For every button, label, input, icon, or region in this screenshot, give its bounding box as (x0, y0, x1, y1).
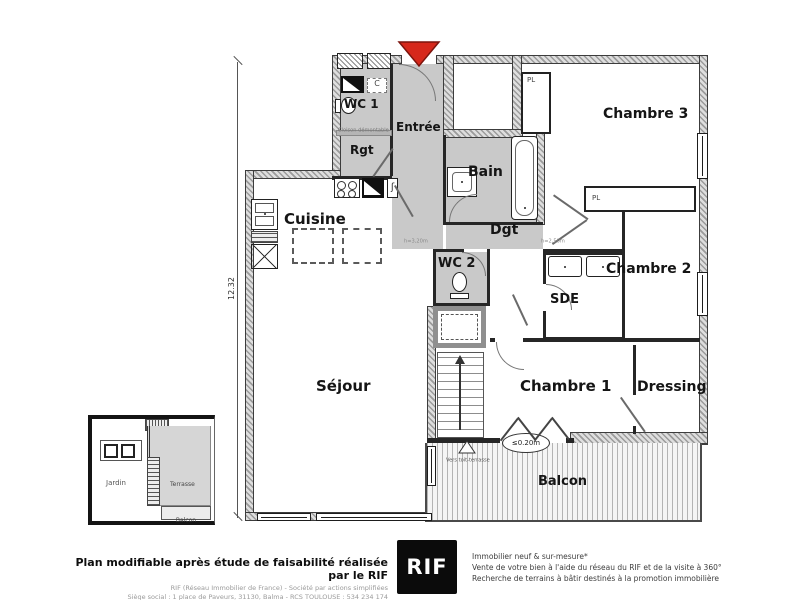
footer-company-line: RIF (Réseau Immobilier de France) - Soci… (62, 584, 388, 592)
partition (487, 249, 490, 306)
footer-address-line: Siège social : 1 place de Paveurs, 31130… (62, 593, 388, 600)
door-arc (496, 342, 524, 370)
room-label-chambre1: Chambre 1 (520, 377, 611, 395)
roof-vent (367, 53, 391, 69)
partition (433, 249, 436, 306)
inset-stairs (147, 457, 160, 506)
kitchen-island (292, 228, 334, 264)
dimension-value: 12.32 (227, 277, 236, 300)
footer-service-line: Vente de votre bien à l'aide du réseau d… (472, 562, 722, 573)
partition (436, 249, 464, 252)
kitchen-sink (251, 199, 278, 230)
window (697, 133, 708, 179)
footer-disclaimer-block: Plan modifiable après étude de faisabili… (62, 556, 388, 600)
roof-vent (337, 53, 363, 69)
key-plan-inset: Balcon Jardin Terrasse (88, 415, 215, 525)
rif-logo-text: RIF (406, 555, 447, 579)
step-level-badge: ≤0.20m (502, 433, 550, 453)
room-label-chambre3: Chambre 3 (603, 106, 688, 122)
stair-direction-line (459, 362, 461, 430)
footer-disclaimer-title: Plan modifiable après étude de faisabili… (62, 556, 388, 582)
cooktop (334, 178, 360, 198)
room-label-wc1: WC 1 (344, 97, 379, 111)
roof-terrace-triangle-icon (458, 440, 476, 455)
appliance-unit (341, 76, 364, 93)
toilet (450, 293, 469, 299)
shower-void (433, 306, 486, 348)
room-label-bain: Bain (468, 164, 503, 180)
window (427, 446, 436, 486)
vers-toit-label: Vers toit-terrasse (446, 457, 490, 463)
partition (633, 345, 636, 395)
partition (633, 426, 636, 434)
room-label-dressing: Dressing (637, 379, 706, 395)
cloison-note: Cloison démontable (338, 127, 389, 133)
room-label-entree: Entrée (396, 120, 441, 134)
partition (543, 311, 546, 340)
room-label-wc2: WC 2 (438, 256, 475, 271)
closet-pl-label: PL (527, 76, 535, 84)
room-label-cuisine: Cuisine (284, 210, 346, 228)
footer-service-line: Immobilier neuf & sur-mesure* (472, 551, 722, 562)
rif-logo: RIF (397, 540, 457, 594)
partition (490, 338, 495, 342)
sliding-bay-window (316, 513, 432, 521)
counter-edge (546, 251, 622, 255)
room-label-sde: SDE (550, 292, 579, 307)
inset-balcon-strip: Balcon (161, 506, 211, 520)
footer: Plan modifiable après étude de faisabili… (0, 538, 800, 600)
kitchen-island (342, 228, 382, 264)
closet-pl: PL (521, 72, 551, 134)
french-door-leaf (551, 417, 570, 440)
wall (512, 55, 708, 64)
closet-pl: PL (584, 186, 696, 212)
cupboard-c-label: C (374, 79, 380, 88)
wall (245, 170, 341, 179)
height-note: h=2,50m (541, 238, 565, 244)
fridge (251, 244, 278, 269)
footer-services-block: Immobilier neuf & sur-mesure* Vente de v… (472, 551, 722, 584)
bathtub (511, 136, 538, 220)
closet-pl-label: PL (592, 194, 600, 202)
partition (390, 64, 393, 176)
dimension-tick (233, 56, 242, 65)
water-heater-symbol: ʃ (391, 182, 394, 193)
door-leaf (512, 294, 528, 326)
oven (362, 178, 384, 198)
cupboard-c: C (367, 78, 387, 93)
partition (443, 135, 446, 225)
sde-sink (548, 256, 582, 277)
partition (523, 338, 700, 342)
inset-balcon-label: Balcon (176, 517, 196, 524)
room-label-rgt: Rgt (350, 143, 374, 157)
window (257, 513, 311, 521)
inset-jardin-label: Jardin (106, 479, 126, 487)
dimension-line (237, 62, 238, 518)
drainer (251, 231, 278, 243)
inset-terrasse-label: Terrasse (170, 481, 195, 488)
dimension-tick (233, 512, 242, 521)
room-label-sejour: Séjour (316, 377, 371, 395)
floorplan-sheet: C ʃ (0, 0, 800, 600)
wall (332, 55, 341, 180)
room-label-dgt: Dgt (490, 222, 518, 238)
wall (443, 55, 454, 135)
stair-arrow-icon (455, 355, 465, 364)
height-note: h=3,20m (404, 238, 428, 244)
footer-service-line: Recherche de terrains à bâtir destinés à… (472, 573, 722, 584)
inset-building (100, 440, 142, 461)
window (697, 272, 708, 316)
room-label-chambre2: Chambre 2 (606, 261, 691, 277)
room-label-balcon: Balcon (538, 474, 587, 489)
